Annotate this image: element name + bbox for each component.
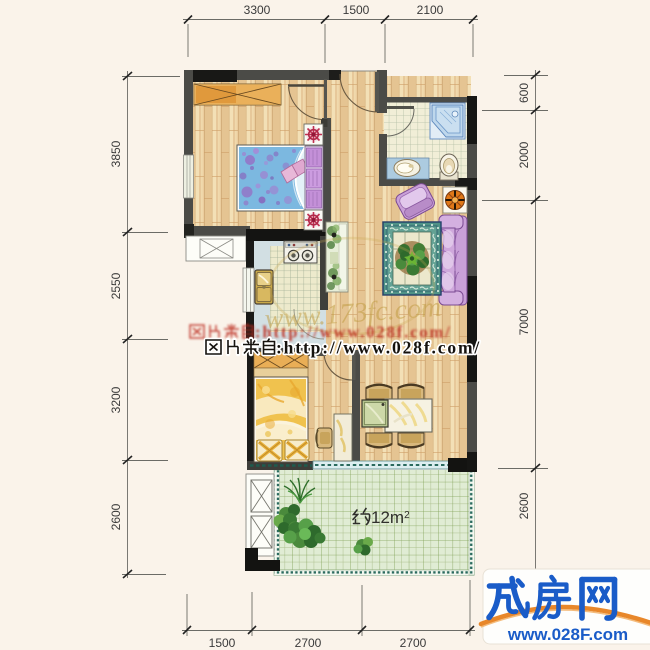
svg-text:2100: 2100 — [417, 3, 444, 17]
svg-text:www.028F.com: www.028F.com — [507, 625, 628, 644]
svg-text:2550: 2550 — [109, 272, 123, 299]
svg-text:7000: 7000 — [517, 308, 531, 335]
svg-text:1500: 1500 — [209, 636, 236, 650]
svg-text:2700: 2700 — [400, 636, 427, 650]
svg-text:3200: 3200 — [109, 386, 123, 413]
svg-text:2600: 2600 — [109, 503, 123, 530]
svg-text:2600: 2600 — [517, 492, 531, 519]
svg-text::http://www.028f.com/: :http://www.028f.com/ — [276, 338, 481, 358]
svg-text:2000: 2000 — [517, 141, 531, 168]
svg-text:600: 600 — [517, 83, 531, 103]
svg-text:3300: 3300 — [244, 3, 271, 17]
svg-text:1500: 1500 — [343, 3, 370, 17]
svg-text:2700: 2700 — [295, 636, 322, 650]
svg-text:3850: 3850 — [109, 140, 123, 167]
